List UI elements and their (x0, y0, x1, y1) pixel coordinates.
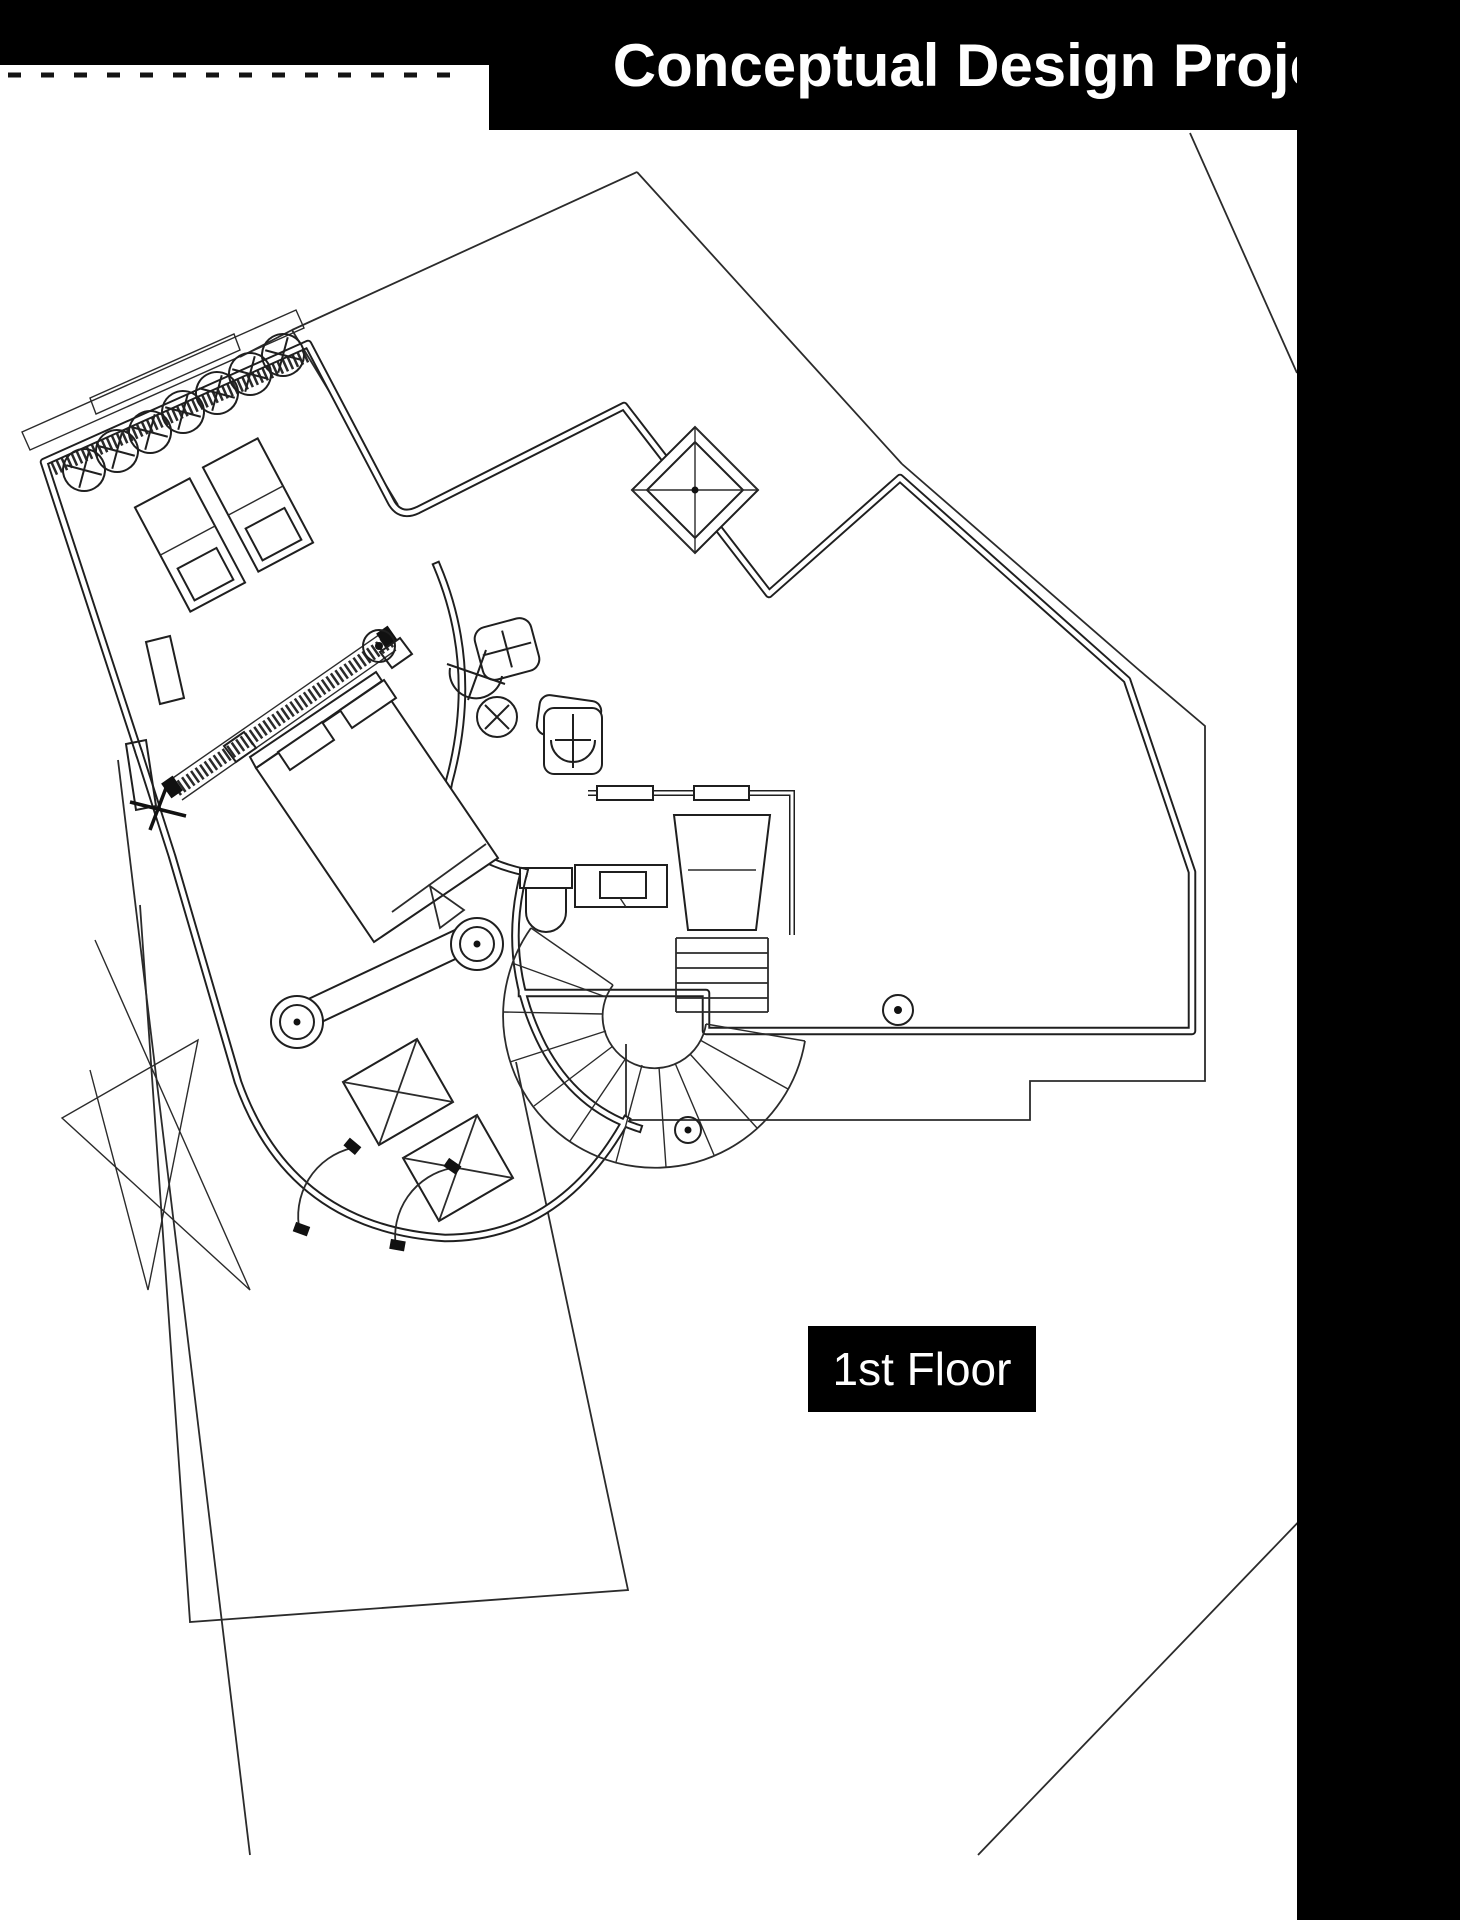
right-black-column (1297, 0, 1460, 1920)
banner-left-block (0, 0, 489, 65)
lounger-beds (135, 438, 313, 611)
page-title: Conceptual Design Project (573, 31, 1376, 100)
floor-plan-drawing (0, 0, 1460, 1920)
bathroom-fixtures (447, 615, 602, 774)
floor-label-text: 1st Floor (833, 1342, 1012, 1396)
dressing-room (520, 815, 770, 932)
round-skylight-circles (55, 326, 311, 498)
floor-label: 1st Floor (808, 1326, 1036, 1412)
master-bed (224, 638, 498, 942)
roof-outline (22, 172, 1205, 1120)
vanity-bench-with-stools (271, 918, 503, 1048)
slide: Conceptual Design Project 1st Floor (0, 0, 1460, 1920)
crossed-wardrobe-boxes (343, 1039, 513, 1221)
